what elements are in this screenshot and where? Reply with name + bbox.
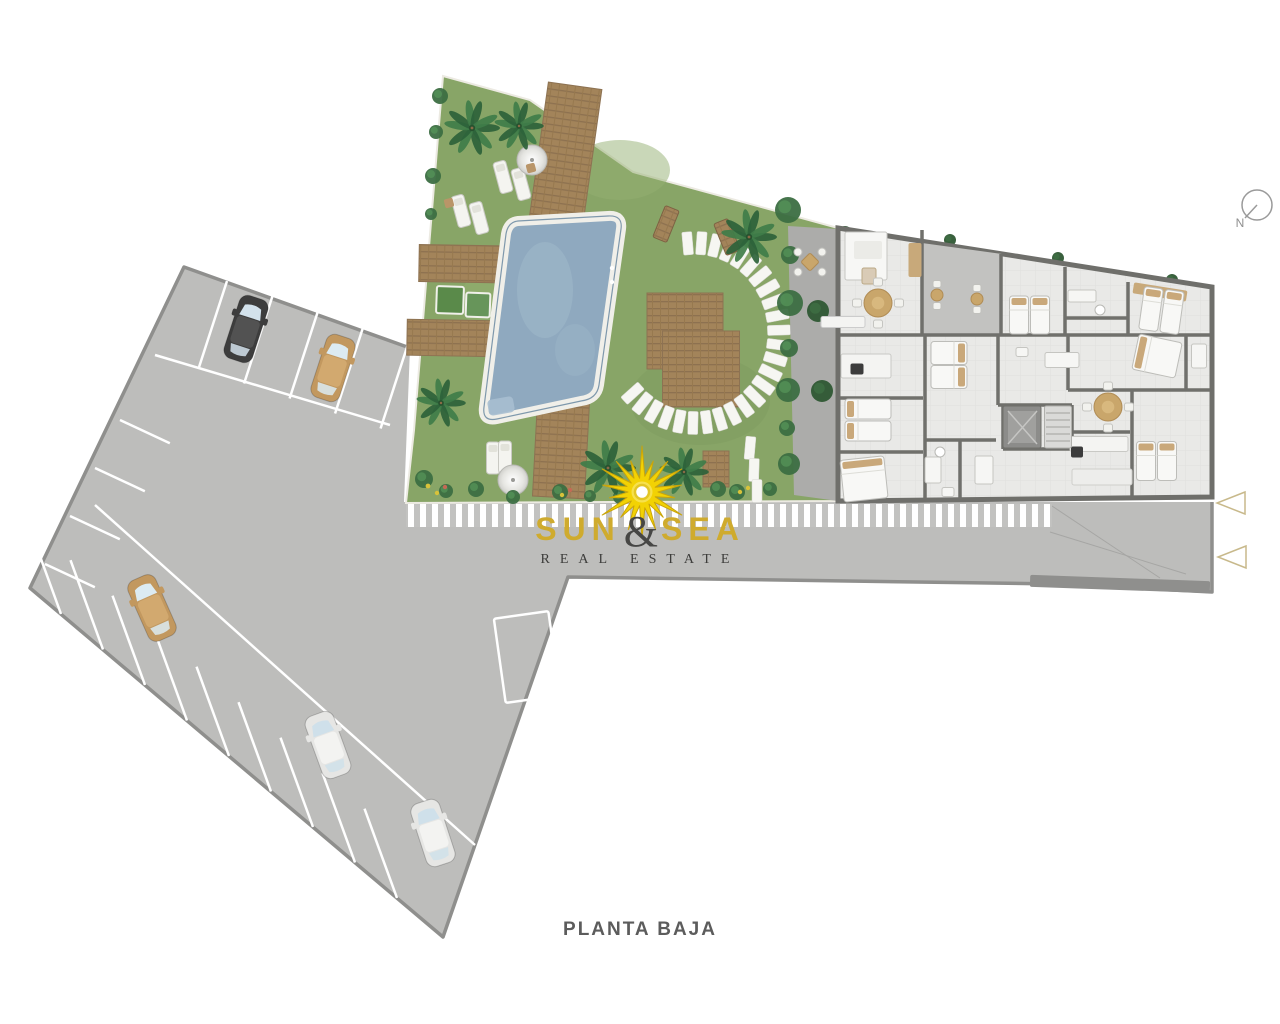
wood-deck <box>663 331 740 407</box>
bistro-set <box>971 285 983 314</box>
bed <box>845 421 891 441</box>
bed <box>931 366 967 389</box>
sun-lounger <box>487 442 500 474</box>
stepping-stone <box>744 436 756 460</box>
entrance-arrow-icon <box>1218 546 1246 568</box>
stepping-stone <box>682 231 694 255</box>
wood-deck <box>407 319 500 357</box>
bed <box>931 342 967 365</box>
bistro-set <box>931 281 943 310</box>
entrance-arrow-icon <box>1217 492 1245 514</box>
bed <box>1010 296 1029 334</box>
bed <box>845 399 891 419</box>
stepping-stone <box>752 480 762 503</box>
north-label: N <box>1230 216 1250 230</box>
bed <box>840 456 888 502</box>
stepping-stone <box>767 325 790 336</box>
site-plan-drawing <box>0 0 1280 1024</box>
stepping-stone <box>695 231 707 255</box>
bed <box>1031 296 1050 334</box>
bed <box>1137 442 1156 481</box>
building-terrace <box>922 243 1002 335</box>
bed <box>1158 442 1177 481</box>
plan-title: PLANTA BAJA <box>0 919 1280 941</box>
stepping-stone <box>688 411 699 434</box>
striped-walkway <box>406 504 1052 527</box>
stepping-stone <box>749 458 760 481</box>
floor-plan-page: SUN&SEA REAL ESTATE PLANTA BAJA N <box>0 0 1280 1024</box>
swimming-pool <box>484 216 621 420</box>
